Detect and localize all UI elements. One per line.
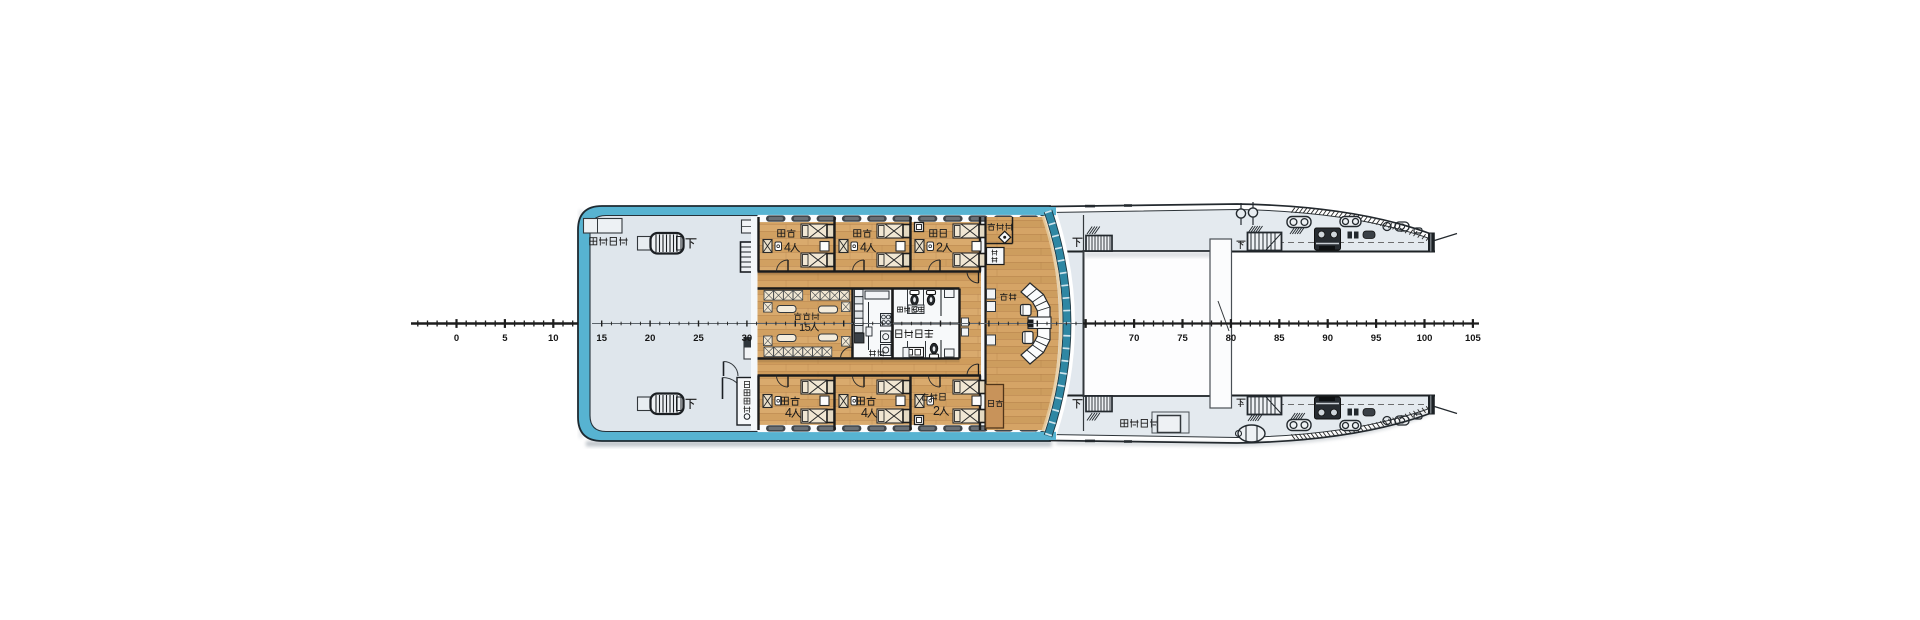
svg-text:4: 4 xyxy=(784,241,791,255)
svg-text:4: 4 xyxy=(785,406,792,420)
svg-text:2: 2 xyxy=(933,404,940,418)
svg-text:105: 105 xyxy=(1465,333,1482,344)
svg-text:75: 75 xyxy=(1177,333,1188,344)
svg-text:80: 80 xyxy=(1226,333,1237,344)
svg-text:0: 0 xyxy=(454,333,459,344)
svg-text:2: 2 xyxy=(936,241,943,255)
svg-text:100: 100 xyxy=(1417,333,1433,344)
svg-text:4: 4 xyxy=(861,406,868,420)
svg-text:70: 70 xyxy=(1129,333,1140,344)
svg-text:30: 30 xyxy=(742,333,753,344)
svg-text:15: 15 xyxy=(596,333,607,344)
svg-text:25: 25 xyxy=(693,333,704,344)
svg-text:5: 5 xyxy=(502,333,508,344)
svg-text:10: 10 xyxy=(548,333,559,344)
svg-text:20: 20 xyxy=(645,333,656,344)
svg-text:4: 4 xyxy=(860,241,867,255)
svg-text:85: 85 xyxy=(1274,333,1285,344)
svg-text:90: 90 xyxy=(1322,333,1333,344)
svg-text:95: 95 xyxy=(1371,333,1382,344)
